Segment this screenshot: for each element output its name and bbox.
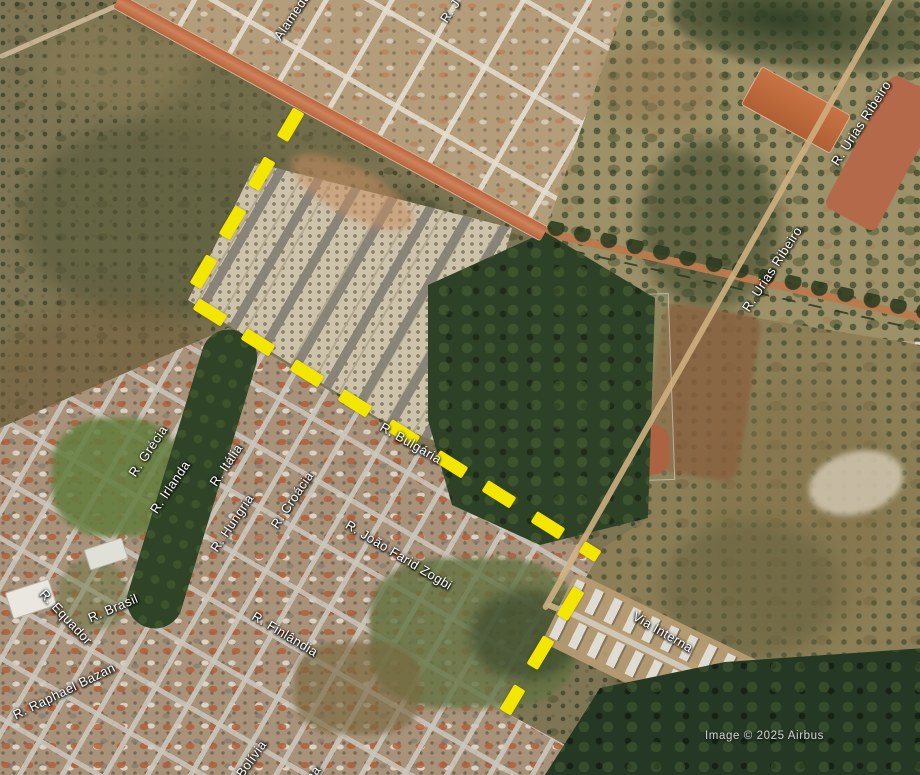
dirt-block	[600, 40, 720, 130]
imagery-attribution: Image © 2025 Airbus	[705, 730, 824, 742]
satellite-map-canvas[interactable]: Image © 2025 Airbus AlamedaR. JR. Urias …	[0, 0, 920, 775]
